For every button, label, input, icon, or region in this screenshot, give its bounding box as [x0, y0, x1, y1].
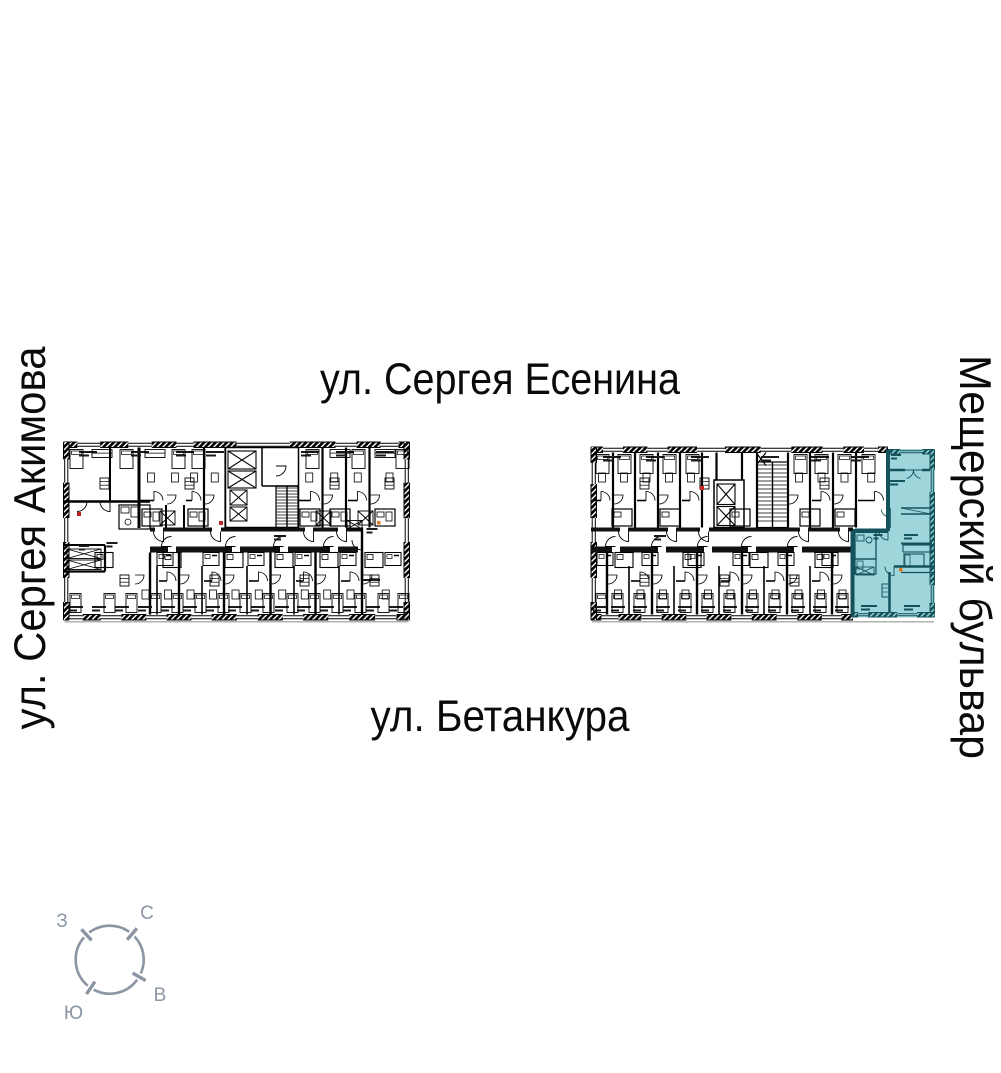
svg-text:Ю: Ю — [64, 1003, 83, 1024]
svg-text:ул. Бетанкура: ул. Бетанкура — [371, 692, 630, 741]
svg-text:В: В — [154, 985, 167, 1006]
svg-text:З: З — [56, 911, 67, 932]
svg-text:С: С — [140, 903, 154, 924]
svg-text:ул. Сергея Акимова: ул. Сергея Акимова — [6, 346, 55, 729]
svg-text:ул. Сергея Есенина: ул. Сергея Есенина — [320, 355, 680, 404]
svg-text:Мещерский бульвар: Мещерский бульвар — [950, 355, 999, 759]
